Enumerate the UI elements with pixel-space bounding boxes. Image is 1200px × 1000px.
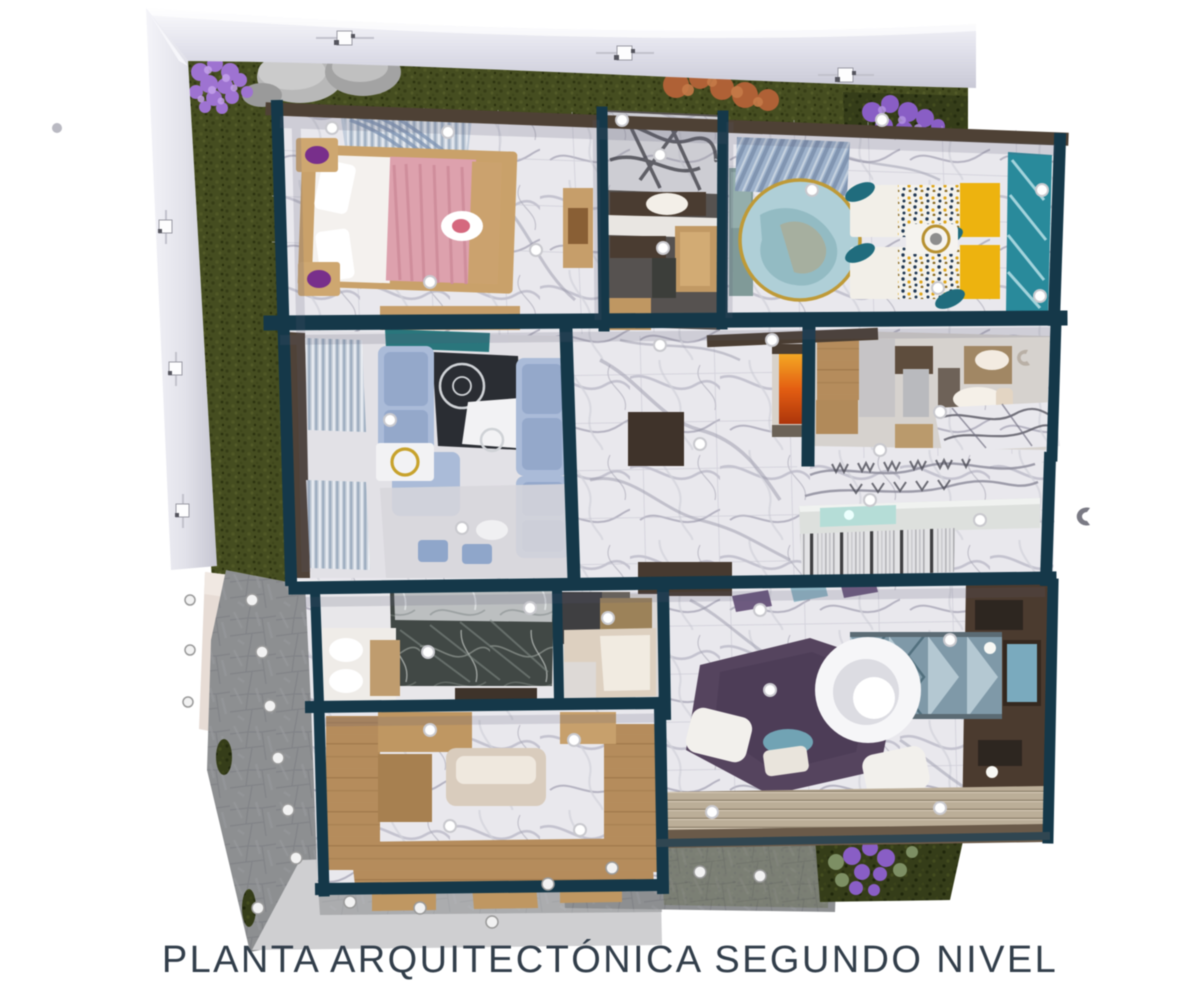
- svg-text:PLANTA ARQUITECTÓNICA SEGUNDO: PLANTA ARQUITECTÓNICA SEGUNDO NIVEL: [162, 938, 1058, 981]
